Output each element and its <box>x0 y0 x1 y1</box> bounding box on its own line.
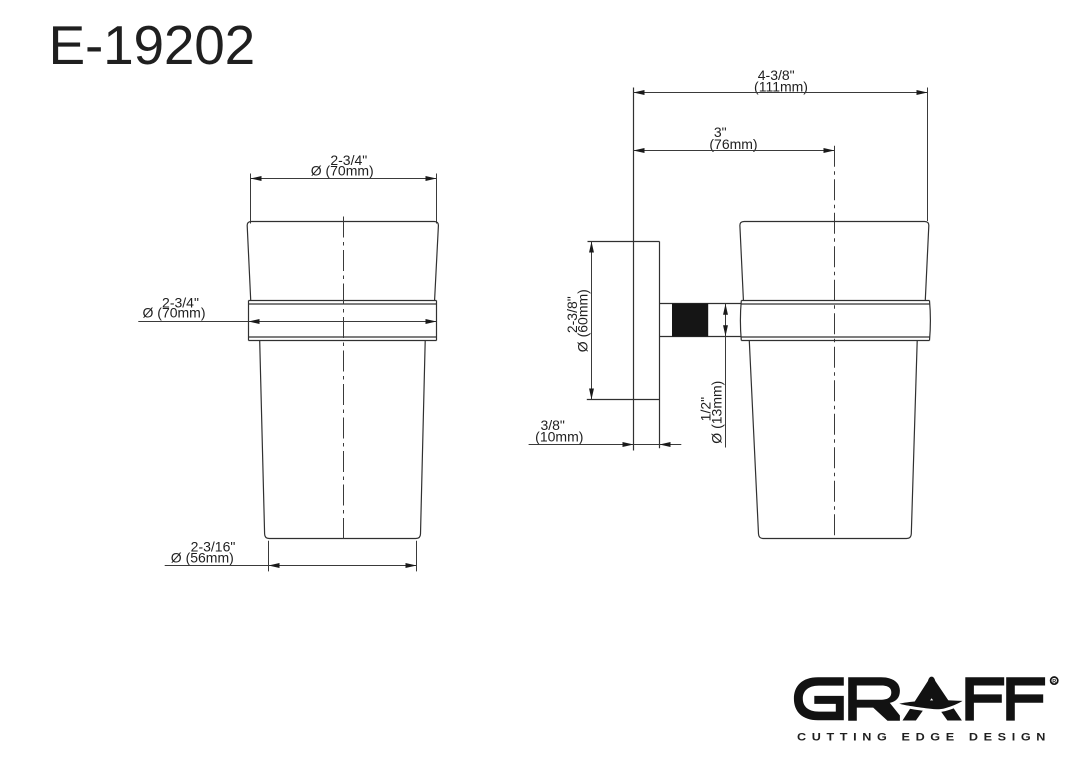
svg-text:E-19202: E-19202 <box>49 14 256 76</box>
svg-text:Ø (70mm): Ø (70mm) <box>143 305 206 321</box>
svg-text:Ø (56mm): Ø (56mm) <box>171 549 234 565</box>
svg-text:R: R <box>1052 679 1056 685</box>
svg-text:(76mm): (76mm) <box>709 136 757 152</box>
svg-text:Ø (13mm): Ø (13mm) <box>709 381 725 444</box>
svg-text:Ø (70mm): Ø (70mm) <box>311 163 374 179</box>
svg-text:(10mm): (10mm) <box>535 428 583 444</box>
svg-text:Ø (60mm): Ø (60mm) <box>575 289 591 352</box>
svg-text:CUTTING EDGE DESIGN: CUTTING EDGE DESIGN <box>797 731 1051 743</box>
